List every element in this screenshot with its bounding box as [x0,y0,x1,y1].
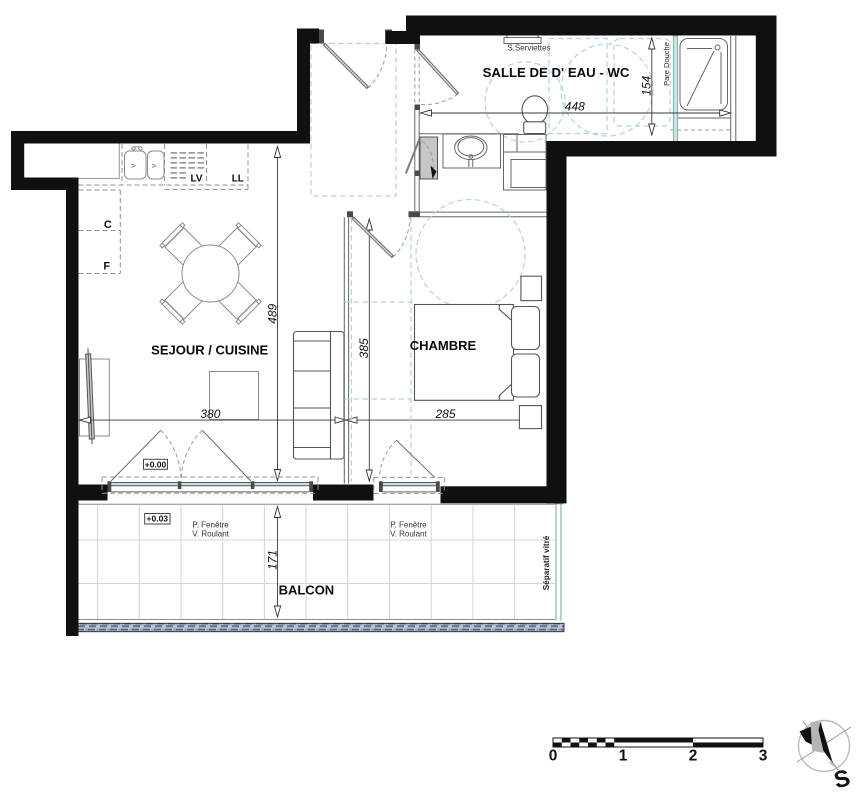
svg-text:+0.00: +0.00 [145,459,167,469]
svg-text:285: 285 [434,407,455,421]
svg-text:V. Roulant: V. Roulant [390,530,427,539]
svg-text:BALCON: BALCON [279,583,335,598]
svg-text:380: 380 [200,407,220,421]
svg-text:>: > [152,162,157,171]
svg-text:2: 2 [689,748,698,765]
svg-text:LV: LV [190,174,202,185]
svg-text:Pare Douche: Pare Douche [662,42,671,86]
svg-text:Séparatif vitré: Séparatif vitré [542,535,551,590]
svg-text:S.Serviettes: S.Serviettes [507,44,550,53]
svg-text:P. Fenêtre: P. Fenêtre [390,521,427,530]
svg-text:>: > [131,162,136,171]
svg-text:171: 171 [265,550,279,570]
svg-text:0: 0 [549,748,558,765]
svg-text:1: 1 [619,748,628,765]
svg-text:V. Roulant: V. Roulant [192,530,229,539]
svg-text:F: F [103,261,110,273]
svg-text:154: 154 [640,75,654,95]
svg-text:3: 3 [759,748,768,765]
svg-text:CHAMBRE: CHAMBRE [410,338,477,353]
svg-text:P. Fenêtre: P. Fenêtre [192,521,229,530]
svg-text:C: C [104,219,112,231]
svg-text:489: 489 [266,303,280,323]
svg-text:SEJOUR / CUISINE: SEJOUR / CUISINE [151,343,268,358]
svg-text:385: 385 [357,338,371,358]
svg-text:448: 448 [565,100,585,114]
svg-text:+0.03: +0.03 [147,514,169,524]
svg-text:SALLE DE D' EAU - WC: SALLE DE D' EAU - WC [483,65,630,80]
svg-text:LL: LL [232,174,244,185]
